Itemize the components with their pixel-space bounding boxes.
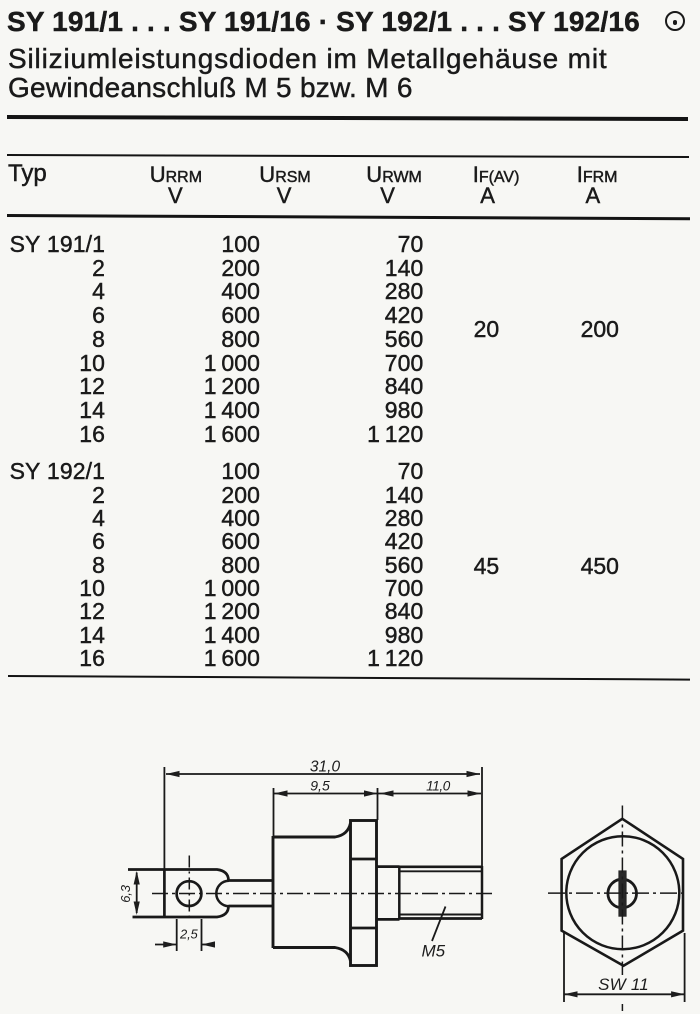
- svg-text:31,0: 31,0: [310, 759, 341, 776]
- svg-text:SW 11: SW 11: [598, 975, 649, 994]
- svg-text:M5: M5: [422, 942, 446, 961]
- svg-text:11,0: 11,0: [426, 779, 451, 794]
- svg-text:2,5: 2,5: [179, 927, 198, 942]
- svg-text:6,3: 6,3: [118, 884, 133, 902]
- svg-text:9,5: 9,5: [310, 778, 330, 794]
